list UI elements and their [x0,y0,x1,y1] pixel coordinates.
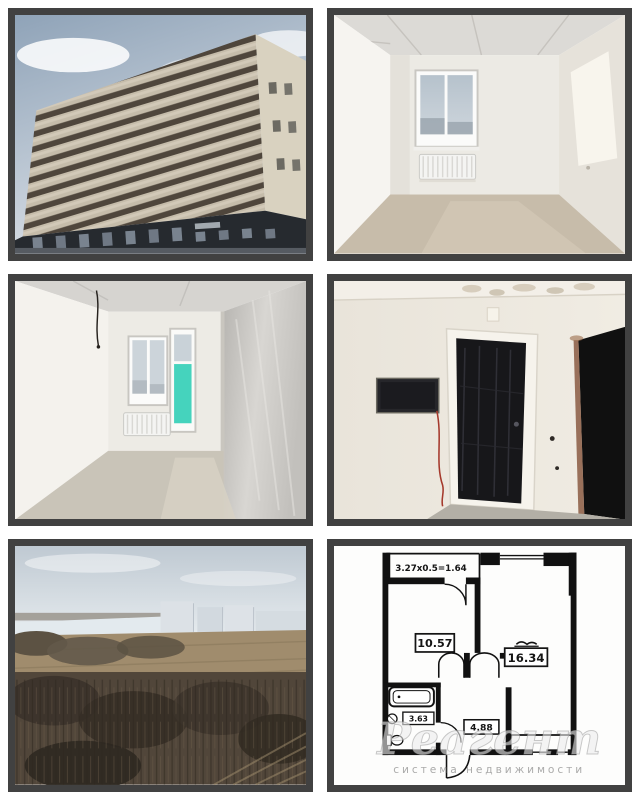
photo-floor-plan[interactable]: 10.57 16.34 3.63 4.88 3.27x0.5=1.64 Реаг… [327,539,632,792]
room-window-illustration [334,15,625,254]
door-handle [514,421,519,426]
room-balcony-illustration [15,281,306,520]
radiator [124,412,171,435]
watermark-brand: Реагент [375,714,601,766]
wire-end [97,345,100,348]
sidewalk [15,248,306,254]
window-sill [414,147,480,151]
socket-hole [555,466,559,470]
cloud [180,571,296,586]
cloud [17,38,130,72]
back-wall-shadow [390,55,409,194]
building-exterior-illustration [15,15,306,254]
entrance-hallway-illustration [334,281,625,520]
photo-entrance-hallway[interactable] [327,274,632,527]
city-silhouette [150,384,165,394]
dark-doorway [578,326,625,519]
entrance-door [456,338,526,503]
bathtub-icon [389,688,434,707]
city-silhouette [420,118,444,134]
photo-gallery-grid: 10.57 16.34 3.63 4.88 3.27x0.5=1.64 Реаг… [0,0,640,800]
photo-empty-room-window[interactable] [327,8,632,261]
kitchen-area-label: 10.57 [417,638,452,651]
socket-hole [550,436,555,441]
watermark-tagline: система недвижимости [393,765,585,777]
balcony-door [170,328,195,431]
electrical-panel [377,378,439,412]
rough-patch [570,335,584,341]
radiator [419,154,475,182]
photo-window-view-landscape[interactable] [8,539,313,792]
city-silhouette [447,122,472,134]
landscape-view-illustration [15,546,306,785]
city-silhouette [132,380,147,393]
balcony-dimension-label: 3.27x0.5=1.64 [395,564,466,574]
junction-box [487,307,499,320]
cloud [25,554,161,573]
wall-outlet [586,166,590,170]
watermark: Реагент система недвижимости [375,714,601,777]
living-room-area-label: 16.34 [508,651,545,665]
photo-empty-room-balcony[interactable] [8,274,313,527]
floor-plan-drawing: 10.57 16.34 3.63 4.88 3.27x0.5=1.64 Реаг… [334,546,625,785]
photo-building-exterior[interactable] [8,8,313,261]
